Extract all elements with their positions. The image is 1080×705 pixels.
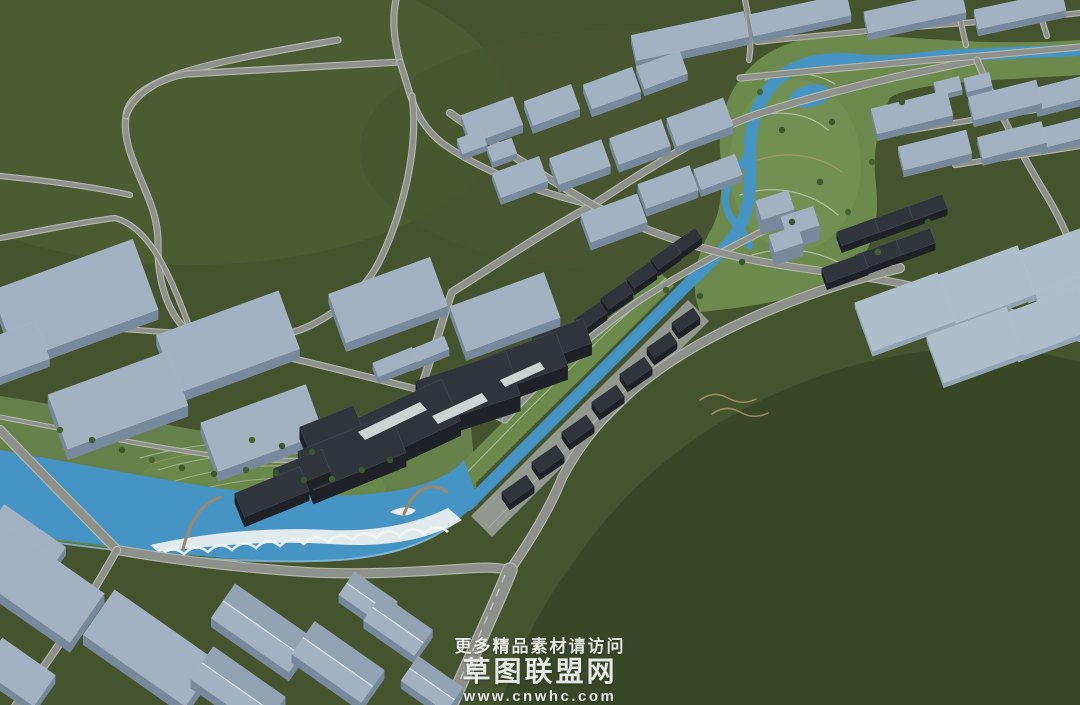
- tree: [179, 465, 185, 471]
- tree: [309, 449, 315, 455]
- tree: [243, 467, 249, 473]
- tree: [119, 447, 125, 453]
- city-model-render: [0, 0, 1080, 705]
- render-viewport: 更多精品素材请访问 草图联盟网 www.cnwhc.com: [0, 0, 1080, 705]
- tree: [757, 89, 763, 95]
- tree: [789, 219, 795, 225]
- tree: [663, 287, 669, 293]
- tree: [89, 437, 95, 443]
- tree: [869, 159, 875, 165]
- tree: [301, 477, 307, 483]
- tree: [779, 127, 785, 133]
- tree: [875, 249, 881, 255]
- tree: [697, 293, 703, 299]
- tree: [387, 457, 393, 463]
- tree: [211, 471, 217, 477]
- tree: [829, 119, 835, 125]
- tree: [149, 457, 155, 463]
- tree: [899, 99, 905, 105]
- tree: [329, 476, 335, 482]
- tree: [359, 467, 365, 473]
- tree: [57, 427, 63, 433]
- tree: [817, 179, 823, 185]
- tree: [925, 219, 931, 225]
- tree: [273, 470, 279, 476]
- tree: [249, 437, 255, 443]
- tree: [739, 259, 745, 265]
- tree: [279, 443, 285, 449]
- tree: [845, 209, 851, 215]
